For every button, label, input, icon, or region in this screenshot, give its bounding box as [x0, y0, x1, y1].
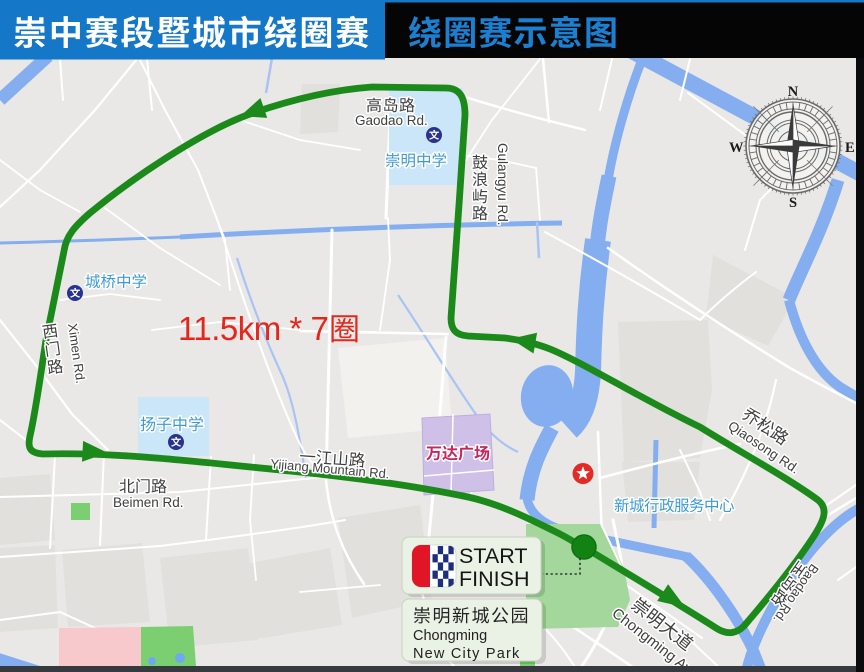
svg-text:W: W: [729, 140, 744, 156]
svg-text:FINISH: FINISH: [459, 567, 529, 591]
svg-text:S: S: [789, 195, 797, 211]
svg-text:Gulangyu Rd.: Gulangyu Rd.: [495, 143, 510, 226]
svg-text:Beimen Rd.: Beimen Rd.: [113, 495, 184, 510]
svg-text:N: N: [788, 84, 799, 100]
svg-text:E: E: [845, 140, 855, 156]
svg-text:Gaodao Rd.: Gaodao Rd.: [355, 113, 428, 128]
svg-text:New City Park: New City Park: [413, 646, 520, 662]
svg-text:Chongming: Chongming: [413, 628, 487, 644]
svg-text:START: START: [459, 544, 528, 568]
svg-text:11.5km * 7: 11.5km * 7: [178, 310, 328, 347]
